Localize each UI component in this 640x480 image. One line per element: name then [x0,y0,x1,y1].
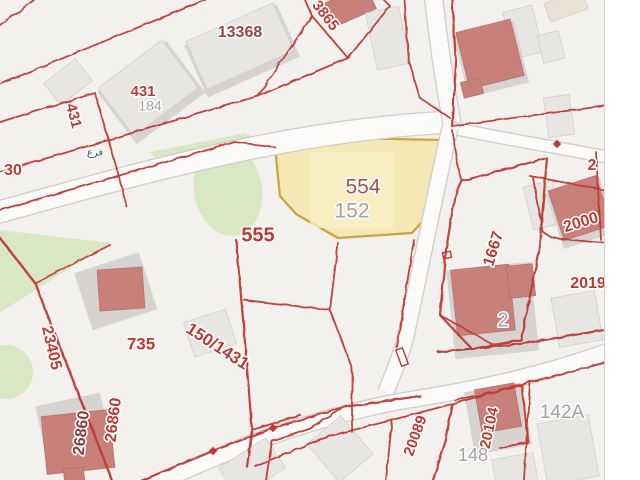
building-gray [551,291,603,348]
parcel-label-148: 148 [458,445,488,465]
parcel-label-13368: 13368 [218,24,263,41]
parcel-label-184: 184 [138,98,162,114]
map-canvas[interactable]: 13368431184431386530فرع554152555735150/1… [0,0,640,480]
parcel-label-152: 152 [334,200,369,223]
building-gray [537,415,599,480]
parcel-label-142A: 142A [540,402,585,423]
parcel-label-735: 735 [127,334,155,353]
building-salmon [63,467,84,480]
parcel-label-2: 2 [497,309,508,331]
parcel-label-554: 554 [345,176,380,199]
parcel-label-2: 2 [588,157,597,174]
parcel-label-2019: 2019 [570,275,606,292]
building-gray [543,94,574,137]
parcel-label-555: 555 [241,224,274,246]
map-viewport[interactable]: 13368431184431386530فرع554152555735150/1… [0,0,640,480]
building-salmon [97,267,145,311]
parcel-label-: فرع [87,148,103,159]
parcel-label-30: 30 [4,162,22,179]
right-margin [604,0,640,480]
